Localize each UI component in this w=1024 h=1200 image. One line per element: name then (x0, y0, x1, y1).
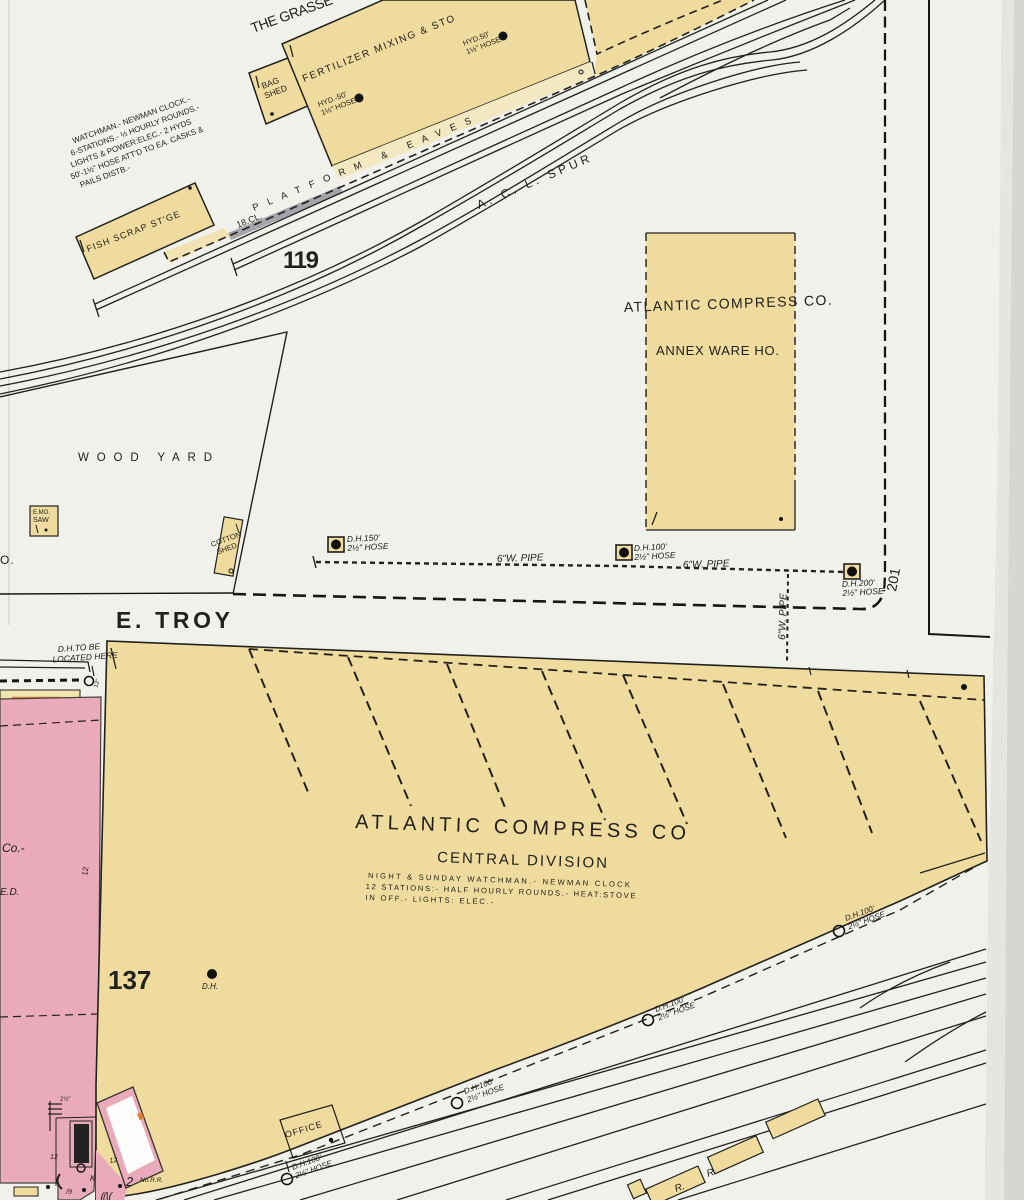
svg-text:E.MO.: E.MO. (33, 510, 50, 516)
svg-text:Co.-: Co.- (2, 841, 25, 855)
svg-text:12: 12 (50, 1154, 58, 1161)
svg-text:2: 2 (125, 1174, 134, 1189)
svg-text:137: 137 (108, 965, 151, 995)
svg-text:SAW: SAW (33, 517, 49, 524)
svg-text:E. TROY: E. TROY (116, 607, 233, 633)
svg-text:E.D.: E.D. (0, 887, 19, 898)
svg-text:ANNEX WARE HO.: ANNEX WARE HO. (656, 343, 780, 358)
svg-text:WOOD YARD: WOOD YARD (78, 452, 218, 464)
svg-text:D.H.: D.H. (202, 982, 218, 991)
svg-text:/9: /9 (65, 1189, 72, 1196)
svg-text:K: K (90, 1174, 96, 1183)
svg-text:O.: O. (0, 553, 15, 567)
svg-text:6"W. PIPE: 6"W. PIPE (683, 558, 730, 571)
svg-text:12: 12 (109, 1157, 118, 1165)
svg-text:No.R.R.: No.R.R. (140, 1177, 163, 1184)
svg-text:⸨|(: ⸨|( (100, 1191, 113, 1200)
svg-text:6"W. PIPE: 6"W. PIPE (497, 552, 544, 565)
svg-text:119: 119 (283, 247, 319, 274)
svg-text:6"W. PIPE: 6"W. PIPE (777, 593, 790, 640)
svg-text:2½": 2½" (60, 1096, 70, 1103)
